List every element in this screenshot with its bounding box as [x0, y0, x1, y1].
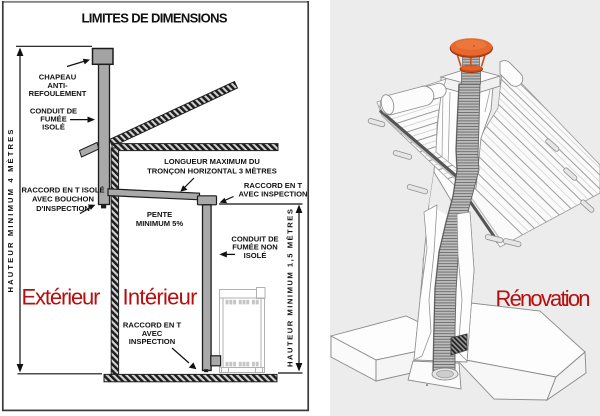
- svg-text:RACCORD EN T ISOLÉ: RACCORD EN T ISOLÉ: [21, 185, 104, 194]
- svg-text:Extérieur: Extérieur: [22, 285, 101, 310]
- svg-text:LONGUEUR MAXIMUM DU: LONGUEUR MAXIMUM DU: [164, 157, 260, 166]
- svg-text:INSPECTION: INSPECTION: [129, 337, 175, 346]
- svg-text:Rénovation: Rénovation: [496, 286, 591, 311]
- svg-text:ISOLÉ: ISOLÉ: [244, 251, 267, 260]
- svg-text:AVEC BOUCHON: AVEC BOUCHON: [32, 195, 94, 204]
- svg-text:D'INSPECTION: D'INSPECTION: [36, 204, 90, 213]
- svg-text:HAUTEUR MINIMUM 1,5 MÈTRES: HAUTEUR MINIMUM 1,5 MÈTRES: [286, 209, 295, 367]
- svg-text:AVEC INSPECTION: AVEC INSPECTION: [238, 189, 307, 198]
- svg-text:PENTE: PENTE: [147, 210, 172, 219]
- svg-text:Intérieur: Intérieur: [123, 285, 198, 310]
- svg-text:ISOLÉ: ISOLÉ: [42, 123, 65, 132]
- svg-text:REFOULEMENT: REFOULEMENT: [29, 89, 87, 98]
- svg-text:LIMITES DE DIMENSIONS: LIMITES DE DIMENSIONS: [82, 11, 228, 26]
- svg-text:TRONÇON HORIZONTAL 3 MÈTRES: TRONÇON HORIZONTAL 3 MÈTRES: [147, 167, 277, 176]
- svg-text:HAUTEUR MINIMUM 4 MÈTRES: HAUTEUR MINIMUM 4 MÈTRES: [6, 130, 15, 293]
- svg-text:MINIMUM 5%: MINIMUM 5%: [136, 219, 183, 228]
